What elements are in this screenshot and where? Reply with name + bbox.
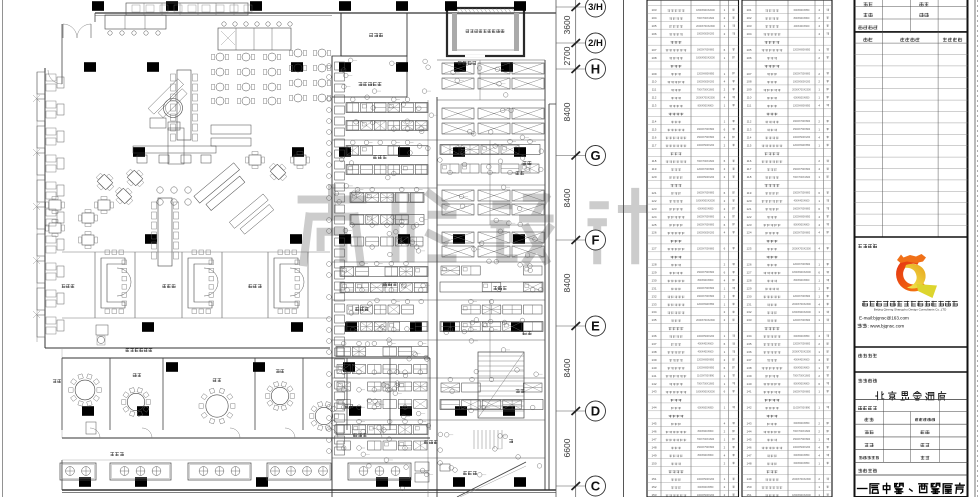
svg-text:600X600X850: 600X600X850 [794, 9, 810, 12]
svg-text:144: 144 [746, 430, 751, 434]
svg-text:115: 115 [652, 127, 657, 131]
svg-text:1000X500X200: 1000X500X200 [697, 144, 715, 147]
svg-text:700X700X1600: 700X700X1600 [793, 430, 811, 433]
svg-text:1200X690X850: 1200X690X850 [697, 367, 715, 370]
svg-text::: : [873, 242, 874, 247]
svg-text:600X600X850: 600X600X850 [698, 486, 714, 489]
svg-text:600X600X850: 600X600X850 [794, 462, 810, 465]
svg-text:103: 103 [651, 8, 656, 12]
svg-text:600X600X850: 600X600X850 [698, 208, 714, 211]
svg-text:1000X500X200: 1000X500X200 [697, 494, 715, 497]
svg-text:8400: 8400 [562, 273, 572, 292]
svg-text:114: 114 [652, 120, 657, 124]
svg-text:150: 150 [651, 461, 656, 465]
svg-text:107: 107 [651, 48, 656, 52]
svg-text:1800X900X2000: 1800X900X2000 [696, 57, 715, 60]
svg-text:1800X900X2000: 1800X900X2000 [792, 311, 811, 314]
svg-text:700X700X1600: 700X700X1600 [697, 88, 715, 91]
svg-text:109: 109 [651, 72, 656, 76]
svg-text:1600X760X800: 1600X760X800 [793, 390, 811, 393]
svg-text:137: 137 [651, 342, 656, 346]
svg-text:1800X900X2000: 1800X900X2000 [792, 494, 811, 497]
svg-text:138: 138 [746, 366, 751, 370]
svg-text:134: 134 [651, 310, 656, 314]
svg-text:2000X700X2300: 2000X700X2300 [792, 88, 811, 91]
svg-text:150: 150 [746, 485, 751, 489]
svg-text:1600X760X800: 1600X760X800 [697, 49, 715, 52]
svg-text:125: 125 [746, 247, 751, 251]
svg-text:1500X750X800: 1500X750X800 [793, 168, 811, 171]
svg-text:105: 105 [651, 24, 656, 28]
svg-text:1200X700X800: 1200X700X800 [697, 247, 715, 250]
svg-text:134: 134 [746, 334, 751, 338]
svg-text:3600: 3600 [562, 15, 572, 34]
svg-text:1200X690X850: 1200X690X850 [697, 303, 715, 306]
svg-text:148: 148 [746, 461, 751, 465]
svg-text:1600X760X800: 1600X760X800 [697, 192, 715, 195]
svg-text:124: 124 [651, 215, 656, 219]
svg-text:800X900X800: 800X900X800 [794, 383, 810, 386]
svg-text:1800X900X2000: 1800X900X2000 [696, 9, 715, 12]
svg-text:120: 120 [746, 199, 751, 203]
svg-text:1500X750X800: 1500X750X800 [697, 136, 715, 139]
svg-text:1600X760X800: 1600X760X800 [697, 287, 715, 290]
svg-text:106: 106 [651, 32, 656, 36]
svg-text:: www.bjqnsc.com: : www.bjqnsc.com [868, 323, 905, 328]
svg-text:1500X750X800: 1500X750X800 [793, 128, 811, 131]
svg-text:700X700X1600: 700X700X1600 [697, 17, 715, 20]
svg-text:139: 139 [746, 374, 751, 378]
svg-text:110: 110 [747, 96, 752, 100]
svg-text:600X600X850: 600X600X850 [794, 96, 810, 99]
svg-text:143: 143 [746, 422, 751, 426]
svg-text:140: 140 [651, 366, 656, 370]
svg-text:400X400X600: 400X400X600 [794, 25, 810, 28]
svg-text:Beijing Qineng Shangchu Design: Beijing Qineng Shangchu Design Consultan… [874, 308, 947, 312]
svg-text:1000X500X200: 1000X500X200 [697, 478, 715, 481]
svg-text:1200X690X850: 1200X690X850 [697, 359, 715, 362]
svg-text:2700: 2700 [562, 46, 572, 65]
svg-text:1200X690X850: 1200X690X850 [697, 73, 715, 76]
svg-text:2000X700X2300: 2000X700X2300 [792, 478, 811, 481]
svg-text:113: 113 [652, 104, 657, 108]
svg-text:1500X750X800: 1500X750X800 [697, 446, 715, 449]
svg-text:125: 125 [651, 223, 656, 227]
svg-text:149: 149 [651, 453, 656, 457]
svg-text:119: 119 [747, 191, 752, 195]
svg-text:133: 133 [651, 302, 656, 306]
svg-text:1600X760X800: 1600X760X800 [697, 128, 715, 131]
svg-text:1200X700X800: 1200X700X800 [697, 168, 715, 171]
svg-text:129: 129 [746, 286, 751, 290]
svg-text:135: 135 [746, 342, 751, 346]
svg-text:700X700X1600: 700X700X1600 [697, 383, 715, 386]
svg-text:1600X760X800: 1600X760X800 [697, 295, 715, 298]
svg-text:104: 104 [746, 32, 751, 36]
svg-text:119: 119 [652, 167, 657, 171]
svg-text:E: E [591, 319, 600, 334]
svg-text:103: 103 [746, 24, 751, 28]
svg-text:2/H: 2/H [588, 38, 603, 49]
svg-text:153: 153 [651, 493, 656, 497]
svg-text:1000X500X200: 1000X500X200 [793, 136, 811, 139]
svg-text:132: 132 [651, 294, 656, 298]
svg-text:149: 149 [746, 477, 751, 481]
svg-text:E-mail:bjqnsc@163.com: E-mail:bjqnsc@163.com [859, 316, 909, 321]
svg-text:130: 130 [651, 278, 656, 282]
svg-text:1600X760X800: 1600X760X800 [697, 224, 715, 227]
svg-text:140: 140 [746, 382, 751, 386]
svg-text::: : [873, 352, 874, 357]
svg-text:105: 105 [746, 48, 751, 52]
svg-text:136: 136 [746, 350, 751, 354]
svg-text:800X900X800: 800X900X800 [698, 430, 714, 433]
svg-text:151: 151 [651, 477, 656, 481]
svg-text:1800X900X2000: 1800X900X2000 [792, 271, 811, 274]
svg-text:118: 118 [747, 175, 752, 179]
svg-text:147: 147 [651, 437, 656, 441]
svg-text:1200X700X800: 1200X700X800 [793, 263, 811, 266]
svg-text:1200X690X850: 1200X690X850 [793, 49, 811, 52]
svg-text:147: 147 [746, 453, 751, 457]
svg-text:800X900X800: 800X900X800 [698, 279, 714, 282]
svg-text:800X900X800: 800X900X800 [698, 104, 714, 107]
svg-text:102: 102 [746, 16, 751, 20]
svg-text:1500X750X800: 1500X750X800 [793, 192, 811, 195]
svg-text:137: 137 [746, 358, 751, 362]
svg-text:D: D [591, 404, 600, 419]
svg-text:1000X500X200: 1000X500X200 [697, 176, 715, 179]
svg-text:136: 136 [651, 334, 656, 338]
svg-text:8400: 8400 [562, 188, 572, 207]
svg-text:800X900X800: 800X900X800 [794, 279, 810, 282]
svg-text:101: 101 [746, 8, 751, 12]
svg-text:2000X700X2300: 2000X700X2300 [696, 319, 715, 322]
svg-text:118: 118 [652, 159, 657, 163]
svg-text:1000X500X200: 1000X500X200 [697, 80, 715, 83]
svg-text:116: 116 [652, 135, 657, 139]
svg-text:146: 146 [651, 430, 656, 434]
svg-text:2000X700X2300: 2000X700X2300 [696, 96, 715, 99]
svg-text:109: 109 [746, 88, 751, 92]
svg-text:1200X700X800: 1200X700X800 [793, 319, 811, 322]
svg-text:700X700X1600: 700X700X1600 [793, 375, 811, 378]
svg-text:129: 129 [651, 271, 656, 275]
svg-text:1800X900X2000: 1800X900X2000 [696, 200, 715, 203]
svg-text:1100X700X890: 1100X700X890 [697, 375, 715, 378]
svg-text:131: 131 [651, 286, 656, 290]
svg-text:1200X700X800: 1200X700X800 [793, 295, 811, 298]
svg-text:120: 120 [651, 175, 656, 179]
svg-text:700X700X1600: 700X700X1600 [793, 176, 811, 179]
svg-text:152: 152 [651, 485, 656, 489]
svg-text:151: 151 [746, 493, 751, 497]
svg-text:800X900X800: 800X900X800 [794, 17, 810, 20]
svg-text:2000X700X2300: 2000X700X2300 [792, 351, 811, 354]
svg-text:130: 130 [746, 294, 751, 298]
svg-text:139: 139 [651, 358, 656, 362]
svg-text:108: 108 [651, 56, 656, 60]
svg-text:135: 135 [651, 318, 656, 322]
svg-text:145: 145 [746, 437, 751, 441]
svg-text:8400: 8400 [562, 358, 572, 377]
svg-text:C: C [591, 479, 601, 494]
svg-text:600X600X850: 600X600X850 [794, 454, 810, 457]
svg-text:133: 133 [746, 318, 751, 322]
svg-text::: : [873, 377, 874, 382]
svg-text:600X600X850: 600X600X850 [794, 422, 810, 425]
svg-text:1500X750X800: 1500X750X800 [793, 231, 811, 234]
svg-text:700X700X1600: 700X700X1600 [697, 160, 715, 163]
svg-text:400X400X600: 400X400X600 [794, 200, 810, 203]
svg-text:6600: 6600 [562, 438, 572, 457]
svg-text:106: 106 [746, 56, 751, 60]
svg-text:112: 112 [652, 96, 657, 100]
svg-text:1200X690X850: 1200X690X850 [793, 144, 811, 147]
svg-text:1200X700X800: 1200X700X800 [793, 343, 811, 346]
svg-text:1100X700X890: 1100X700X890 [793, 406, 811, 409]
svg-text:127: 127 [651, 247, 656, 251]
svg-text:F: F [592, 233, 600, 248]
svg-text:144: 144 [651, 406, 656, 410]
svg-text:116: 116 [747, 159, 752, 163]
svg-text:700X700X1600: 700X700X1600 [697, 438, 715, 441]
svg-text:117: 117 [652, 143, 657, 147]
svg-text:1600X760X800: 1600X760X800 [793, 120, 811, 123]
svg-text:1000X500X200: 1000X500X200 [697, 231, 715, 234]
svg-text:146: 146 [746, 445, 751, 449]
svg-text:143: 143 [651, 390, 656, 394]
svg-text:126: 126 [746, 263, 751, 267]
svg-text:111: 111 [747, 104, 752, 108]
svg-text:1500X750X800: 1500X750X800 [697, 271, 715, 274]
svg-text:2000X700X2300: 2000X700X2300 [792, 303, 811, 306]
svg-text:800X900X800: 800X900X800 [698, 454, 714, 457]
svg-text:148: 148 [651, 445, 656, 449]
svg-text:110: 110 [652, 80, 657, 84]
svg-text:8400: 8400 [562, 102, 572, 121]
svg-text:1200X690X850: 1200X690X850 [793, 104, 811, 107]
svg-text:112: 112 [747, 120, 752, 124]
svg-text:800X900X800: 800X900X800 [794, 367, 810, 370]
svg-text:141: 141 [746, 390, 751, 394]
svg-text:1200X690X850: 1200X690X850 [793, 216, 811, 219]
svg-text:2000X700X2300: 2000X700X2300 [696, 25, 715, 28]
svg-text:142: 142 [746, 406, 751, 410]
svg-text:108: 108 [746, 80, 751, 84]
svg-text:1000X500X200: 1000X500X200 [697, 33, 715, 36]
svg-text:121: 121 [651, 191, 656, 195]
svg-text:115: 115 [747, 143, 752, 147]
svg-text:141: 141 [651, 374, 656, 378]
svg-text:122: 122 [651, 199, 656, 203]
svg-text:111: 111 [652, 88, 657, 92]
svg-text:104: 104 [651, 16, 656, 20]
svg-text:1800X900X2000: 1800X900X2000 [696, 390, 715, 393]
svg-text:600X600X850: 600X600X850 [794, 335, 810, 338]
svg-text:145: 145 [651, 422, 656, 426]
svg-text:121: 121 [746, 207, 751, 211]
svg-text:400X400X600: 400X400X600 [794, 359, 810, 362]
svg-text:126: 126 [651, 231, 656, 235]
svg-text:124: 124 [746, 231, 751, 235]
svg-text:123: 123 [651, 207, 656, 211]
svg-text:142: 142 [651, 382, 656, 386]
svg-text:122: 122 [746, 215, 751, 219]
svg-text:114: 114 [747, 135, 752, 139]
svg-text:1600X760X800: 1600X760X800 [697, 216, 715, 219]
svg-text:113: 113 [747, 127, 752, 131]
svg-text:800X900X800: 800X900X800 [794, 224, 810, 227]
svg-text:2000X700X2300: 2000X700X2300 [792, 247, 811, 250]
svg-text:600X600X850: 600X600X850 [698, 406, 714, 409]
svg-text:1000X500X200: 1000X500X200 [793, 446, 811, 449]
svg-text:1600X760X800: 1600X760X800 [793, 208, 811, 211]
svg-text:3/H: 3/H [588, 2, 603, 13]
svg-text:123: 123 [746, 223, 751, 227]
svg-text:131: 131 [746, 302, 751, 306]
svg-text:128: 128 [746, 278, 751, 282]
svg-text:107: 107 [746, 72, 751, 76]
svg-text:1000X500X200: 1000X500X200 [697, 335, 715, 338]
svg-text:138: 138 [651, 350, 656, 354]
svg-text:1500X750X800: 1500X750X800 [793, 438, 811, 441]
svg-text:G: G [590, 148, 600, 163]
svg-text:1000X500X200: 1000X500X200 [793, 80, 811, 83]
svg-text:400X400X600: 400X400X600 [698, 343, 714, 346]
svg-text:400X400X600: 400X400X600 [698, 351, 714, 354]
svg-text:H: H [591, 62, 600, 77]
svg-text:127: 127 [746, 271, 751, 275]
svg-text:128: 128 [651, 263, 656, 267]
svg-text:117: 117 [747, 167, 752, 171]
svg-text:1500X750X800: 1500X750X800 [793, 73, 811, 76]
svg-text:132: 132 [746, 310, 751, 314]
svg-text::: : [873, 467, 874, 472]
